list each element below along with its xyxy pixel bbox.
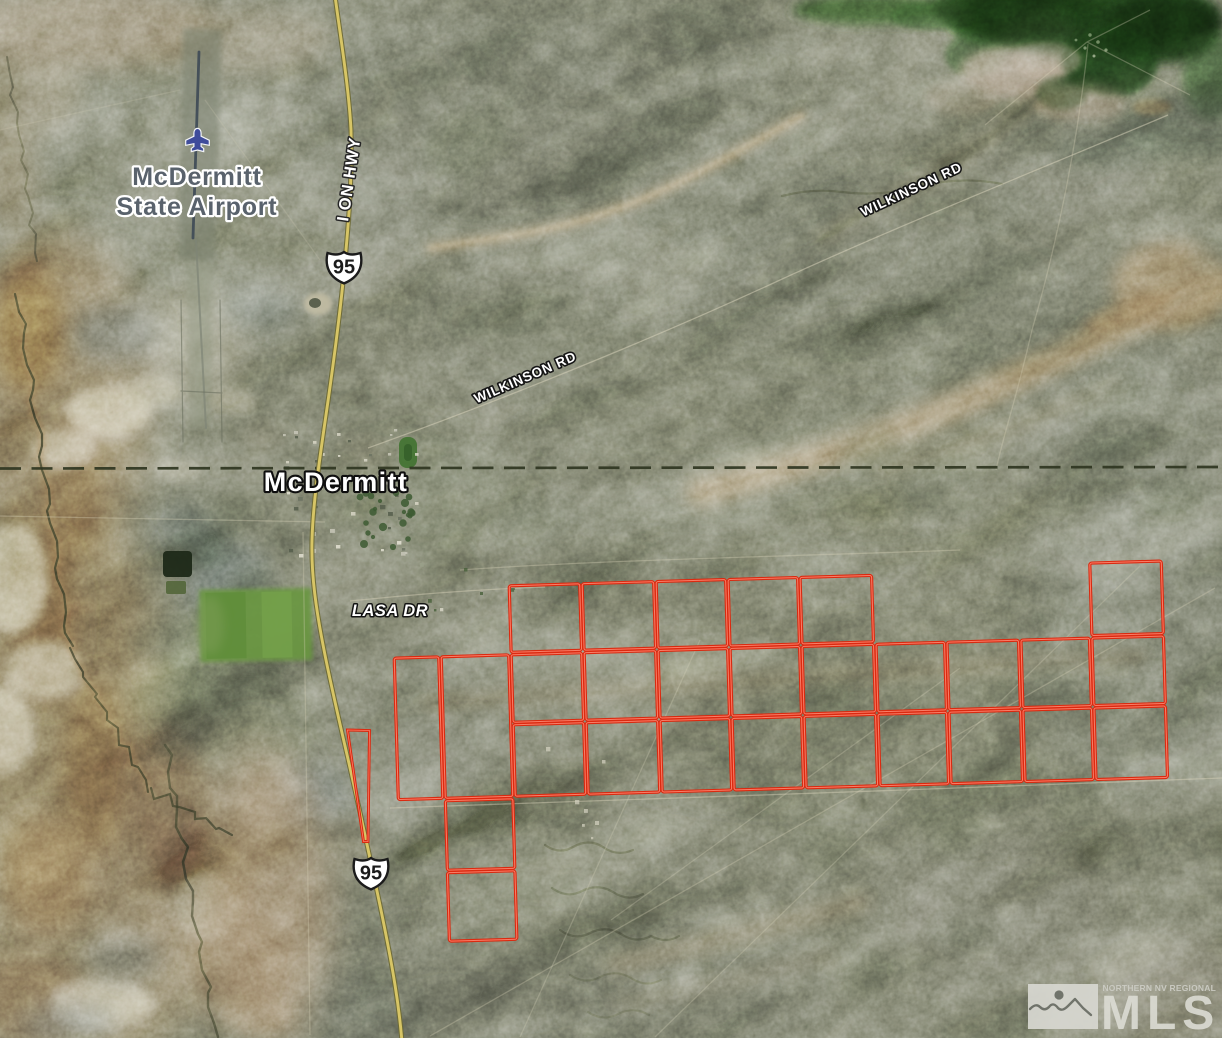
svg-text:McDermitt: McDermitt	[264, 467, 409, 497]
svg-text:MLS: MLS	[1101, 987, 1220, 1038]
svg-text:LASA DR: LASA DR	[352, 602, 428, 620]
